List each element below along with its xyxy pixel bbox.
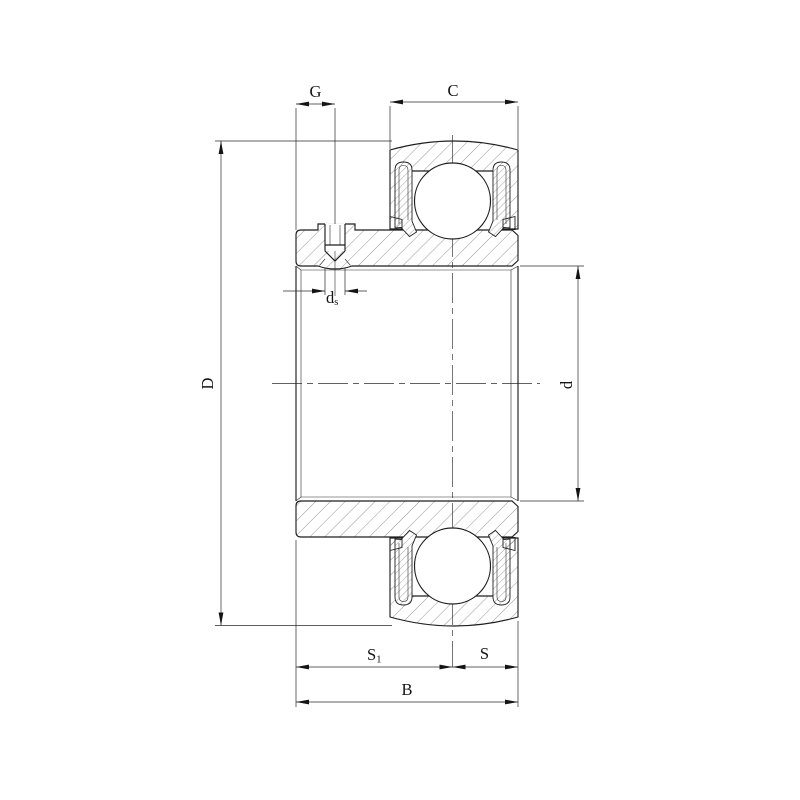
- bearing-cross-section-drawing: G C D d ds S1 S: [0, 0, 800, 800]
- dim-label-C: C: [447, 81, 458, 100]
- drawing-background: [0, 0, 800, 800]
- dim-label-G: G: [310, 82, 322, 101]
- ball-top: [415, 163, 491, 239]
- dim-label-B: B: [401, 680, 412, 699]
- bearing-drawing-page: G C D d ds S1 S: [0, 0, 800, 800]
- inner-ring-lower-section: [296, 501, 518, 537]
- dim-label-d: d: [557, 380, 576, 389]
- ball-bottom: [415, 528, 491, 604]
- dim-label-D: D: [198, 377, 217, 389]
- dim-label-S: S: [480, 644, 489, 663]
